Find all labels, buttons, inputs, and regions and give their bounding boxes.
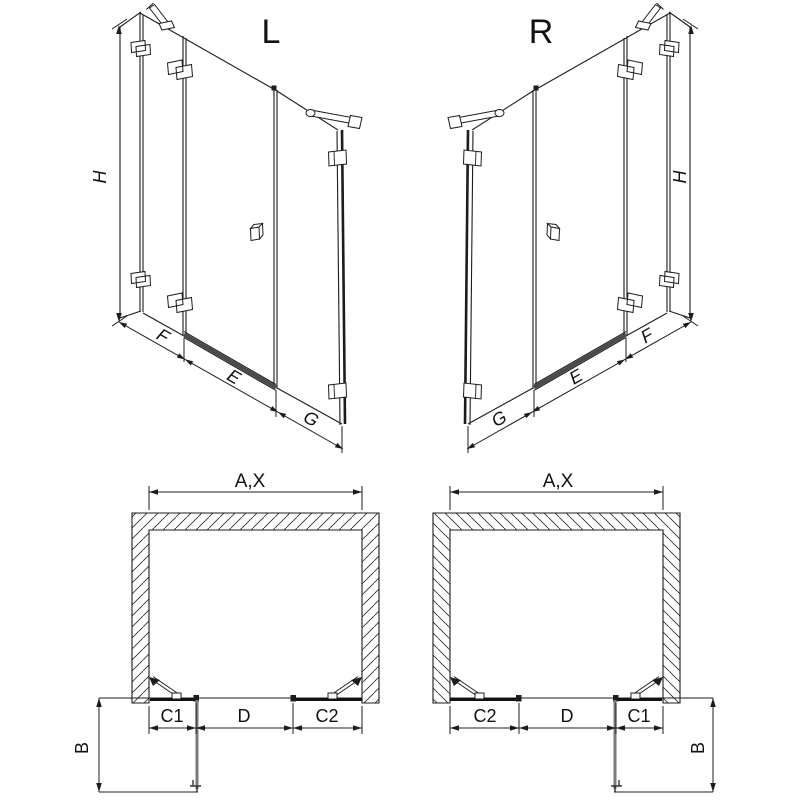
shower-enclosure-dimension-diagram: L H F E G R H G E F A,X C1 D C2 B A,X C2… [0,0,800,800]
plan-left-depth-label: B [72,742,92,754]
iso-right-dim-f: F [637,324,657,347]
plan-right-depth-label: B [688,742,708,754]
plan-right-dim-d: D [561,706,574,726]
plan-right-dim-c1: C1 [627,706,650,726]
iso-left-height-label: H [90,170,110,184]
iso-right-dim-g: G [488,407,510,431]
iso-left-dim-g: G [300,407,322,431]
iso-left-title: L [262,13,281,51]
plan-left-dim-c2: C2 [315,706,338,726]
plan-left-view: A,X C1 D C2 B [72,471,379,792]
plan-left-dim-c1: C1 [160,706,183,726]
iso-left-dim-e: E [224,365,245,389]
iso-left-view: L H F E G [90,3,362,453]
plan-right-width-label: A,X [543,471,574,492]
iso-right-height-label: H [670,170,690,184]
plan-left-width-label: A,X [235,471,266,492]
iso-right-view: R H G E F [448,3,698,453]
plan-right-dim-c2: C2 [473,706,496,726]
plan-left-linework [96,486,379,792]
iso-left-dim-f: F [153,324,173,347]
plan-right-view: A,X C2 D C1 B [433,471,716,792]
iso-right-dim-e: E [566,365,587,389]
plan-right-linework [433,486,716,792]
iso-left-linework [112,3,362,453]
plan-left-dim-d: D [238,706,251,726]
iso-right-title: R [529,13,554,51]
